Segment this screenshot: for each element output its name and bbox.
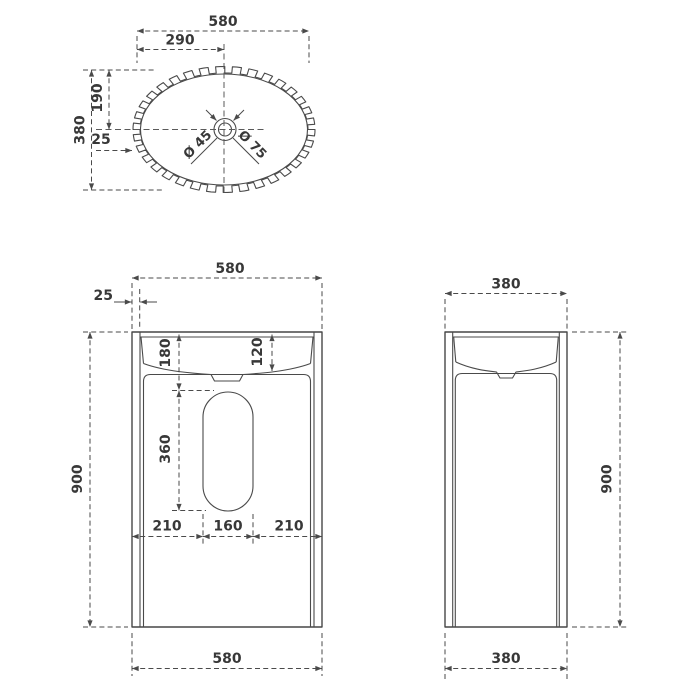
front-recess-panel	[144, 375, 311, 628]
dim-front-cutout-position: 210 160 210	[132, 514, 322, 545]
dim-top-overall-width: 580	[137, 14, 309, 63]
dim-label-left: 210	[152, 519, 181, 535]
dim-top-center-width: 290	[137, 33, 224, 50]
top-view: 580 290 380 190 25 Ø 45	[73, 14, 316, 196]
dim-side-base-width: 380	[445, 633, 567, 680]
dim-side-overall-height: 900	[572, 332, 627, 627]
dim-side-overall-width: 380	[445, 277, 567, 330]
technical-drawing-page: 580 290 380 190 25 Ø 45	[0, 0, 700, 700]
dim-label-right: 210	[274, 519, 303, 535]
dim-front-base-width: 580	[132, 633, 322, 676]
bowl-bottom-profile	[456, 362, 556, 378]
dim-front-depth-to-cutout: 180	[158, 335, 179, 391]
side-recess-panel	[455, 374, 556, 628]
dim-front-wall-thickness: 25	[94, 288, 157, 329]
dim-label: 900	[70, 464, 86, 493]
dim-front-overall-height: 900	[70, 332, 128, 627]
basin-technical-drawing: 580 290 380 190 25 Ø 45	[0, 0, 700, 700]
dim-front-basin-depth: 120	[250, 335, 272, 372]
dim-label: 360	[158, 434, 174, 463]
dim-label: 580	[208, 14, 237, 30]
dim-front-overall-width: 580	[132, 261, 322, 329]
dim-label: 580	[212, 651, 241, 667]
dim-label: 900	[600, 464, 616, 493]
side-view: 380 900 380	[445, 277, 627, 681]
bowl-wall-left	[141, 337, 144, 364]
bowl-wall-right	[556, 337, 558, 362]
dim-label: 180	[158, 338, 174, 367]
dim-label: 290	[165, 33, 194, 49]
towel-cutout	[203, 392, 253, 511]
bowl-wall-left	[454, 337, 456, 362]
dim-label: 25	[94, 288, 113, 304]
dim-top-center-depth: 190	[90, 70, 109, 130]
dim-label: 25	[91, 132, 110, 148]
dim-front-cutout-height: 360	[158, 391, 214, 511]
front-view: 580 25 180 120 360	[70, 261, 322, 676]
dim-label: 380	[491, 277, 520, 293]
bowl-wall-right	[311, 337, 314, 364]
dim-label: 380	[491, 651, 520, 667]
dim-top-edge-offset: 25	[91, 132, 132, 151]
pedestal-outline	[445, 332, 567, 627]
pedestal-outline	[132, 332, 322, 627]
dim-label-center: 160	[213, 519, 242, 535]
dim-label: 380	[73, 115, 89, 144]
dim-label: 580	[215, 261, 244, 277]
dim-label: 190	[90, 83, 106, 112]
dim-label: 120	[250, 337, 266, 366]
